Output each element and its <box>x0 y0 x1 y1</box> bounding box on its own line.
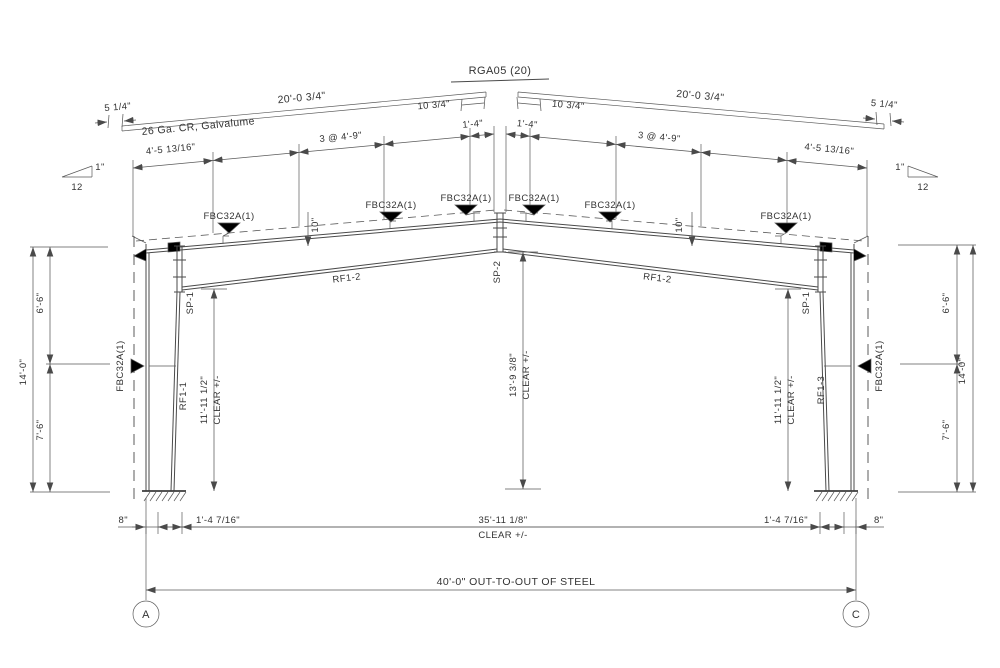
height-dims-left: 6'-6" 7'-6" 14'-0" <box>18 247 110 492</box>
flange-brace-flags: FBC32A(1) FBC32A(1) FBC32A(1) FBC32A(1) … <box>115 193 885 392</box>
clear-height-left-tol: CLEAR +/- <box>212 375 223 424</box>
eave-offset-left: 8" <box>119 515 128 526</box>
knee-splice-label-right: SP-1 <box>801 292 812 315</box>
height-lower-right: 7'-6" <box>941 420 952 441</box>
ridge-panel-dim-left: 10 3/4" <box>417 99 450 113</box>
frame-members <box>132 210 868 503</box>
purlin-bays-left: 3 @ 4'-9" <box>319 130 363 145</box>
ground-hatch-right <box>816 492 858 501</box>
rafter-label-right: RF1-2 <box>643 271 673 285</box>
column-left <box>146 244 180 491</box>
clear-span-tol: CLEAR +/- <box>478 530 527 541</box>
clear-span: 35'-11 1/8" <box>478 515 527 526</box>
title-underline <box>451 79 549 82</box>
eave-purlin-right <box>820 242 832 252</box>
slope-rise-right: 1" <box>895 162 904 173</box>
grid-letter-a: A <box>142 609 150 621</box>
ground-hatch-left <box>144 492 186 501</box>
height-upper-left: 6'-6" <box>35 293 46 314</box>
width-dim-chain: 8" 1'-4 7/16" 35'-11 1/8" CLEAR +/- 1'-4… <box>118 512 884 541</box>
roof-panel-sketch: RGA05 (20) 5 1/4" 5 1/4" 20'-0 3/4" 20'-… <box>95 65 904 138</box>
panel-end-dim-left: 5 1/4" <box>104 101 132 114</box>
purlin-bays-right: 3 @ 4'-9" <box>637 130 681 145</box>
purlin-end-bay-left: 4'-5 13/16" <box>145 142 196 158</box>
panel-length-left: 20'-0 3/4" <box>277 90 326 106</box>
knee-splice-label-left: SP-1 <box>185 292 196 315</box>
slope-symbol-right: 1" 12 <box>895 162 938 193</box>
eave-trim-right <box>854 236 868 261</box>
frame-cross-section-sheet: RGA05 (20) 5 1/4" 5 1/4" 20'-0 3/4" 20'-… <box>0 0 1000 668</box>
fbc-label-column-right: FBC32A(1) <box>874 340 885 391</box>
clear-height-right-tol: CLEAR +/- <box>786 375 797 424</box>
column-label-left: RF1-1 <box>178 382 189 410</box>
slope-rise-left: 1" <box>95 162 104 173</box>
slope-symbol-left: 1" 12 <box>62 162 105 193</box>
column-right <box>820 244 854 491</box>
height-dims-right: 6'-6" 7'-6" 14'-0" <box>898 245 976 492</box>
ridge-bay-right: 1'-4" <box>516 118 538 131</box>
panel-end-dim-right: 5 1/4" <box>870 98 898 111</box>
clear-height-center: 13'-9 3/8" <box>508 353 519 397</box>
height-total-right: 14'-0" <box>957 358 968 385</box>
fbc-label-column-left: FBC32A(1) <box>115 340 126 391</box>
panel-mark-title: RGA05 (20) <box>469 65 532 77</box>
height-total-left: 14'-0" <box>18 359 29 386</box>
slope-run-left: 12 <box>71 182 82 193</box>
height-upper-right: 6'-6" <box>941 293 952 314</box>
height-lower-left: 7'-6" <box>35 420 46 441</box>
fbc-label-2: FBC32A(1) <box>365 200 416 211</box>
brace-offset-left: 10" <box>310 217 321 232</box>
knee-splice-left <box>173 246 186 292</box>
fbc-label-5: FBC32A(1) <box>584 200 635 211</box>
out-to-out-label: 40'-0" OUT-TO-OUT OF STEEL <box>437 576 596 588</box>
column-label-right: RF1-3 <box>816 376 827 404</box>
ridge-panel-dim-right: 10 3/4" <box>552 99 585 113</box>
ridge-splice-label: SP-2 <box>492 261 503 284</box>
clear-height-left: 11'-11 1/2" <box>199 376 210 424</box>
brace-offset-right: 10" <box>674 217 685 232</box>
purlin-end-bay-right: 4'-5 13/16" <box>804 142 855 158</box>
slope-run-right: 12 <box>917 182 928 193</box>
fbc-label-3: FBC32A(1) <box>440 193 491 204</box>
column-inset-left: 1'-4 7/16" <box>196 515 240 526</box>
eave-purlin-left <box>168 242 180 252</box>
rafter-top-flange <box>146 219 854 253</box>
ridge-splice <box>493 213 507 252</box>
clear-height-center-tol: CLEAR +/- <box>521 350 532 399</box>
frame-cross-section-drawing: RGA05 (20) 5 1/4" 5 1/4" 20'-0 3/4" 20'-… <box>0 0 1000 668</box>
fbc-label-1: FBC32A(1) <box>203 211 254 222</box>
panel-length-right: 20'-0 3/4" <box>676 88 725 104</box>
fbc-label-4: FBC32A(1) <box>508 193 559 204</box>
clear-height-dims: 11'-11 1/2" CLEAR +/- 11'-11 1/2" CLEAR … <box>199 252 801 491</box>
brace-offset-dims: 10" 10" <box>308 212 692 246</box>
grid-letter-c: C <box>852 609 860 621</box>
ridge-bay-left: 1'-4" <box>462 118 484 131</box>
fbc-label-6: FBC32A(1) <box>760 211 811 222</box>
knee-splice-right <box>814 246 827 292</box>
eave-offset-right: 8" <box>874 515 883 526</box>
rafter-label-left: RF1-2 <box>332 271 362 285</box>
clear-height-right: 11'-11 1/2" <box>773 376 784 424</box>
column-inset-right: 1'-4 7/16" <box>764 515 808 526</box>
